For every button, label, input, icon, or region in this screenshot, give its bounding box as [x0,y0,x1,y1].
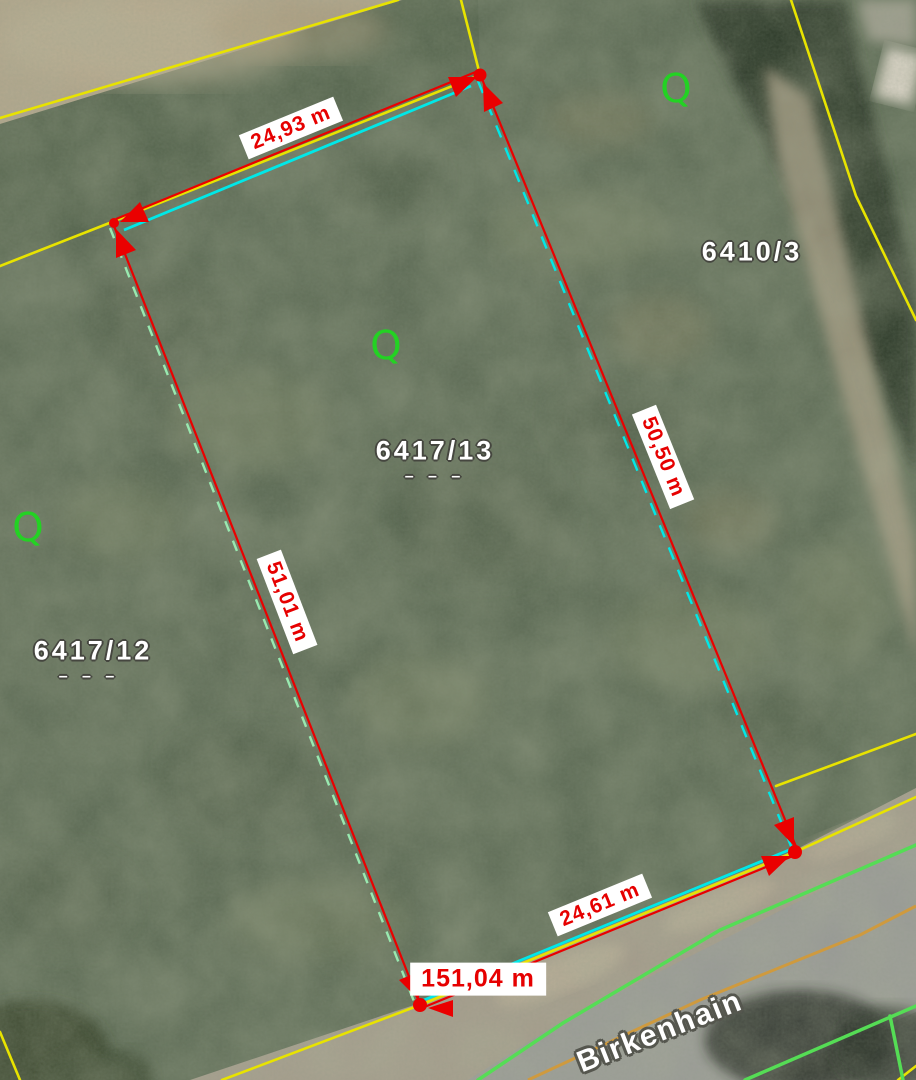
aerial-photo [0,0,916,1080]
parcel-label-6417-13: 6417/13 [376,436,495,467]
map-viewport[interactable]: 24,93 m 51,01 m 50,50 m 24,61 m 151,04 m… [0,0,916,1080]
parcel-marks-6417-12: – – – [59,668,120,686]
measurement-label-total: 151,04 m [410,963,546,996]
landuse-symbol-icon: Q [659,65,694,113]
parcel-marks-6417-13: – – – [405,468,466,486]
photo-texture [0,0,916,1080]
parcel-label-6410-3: 6410/3 [702,237,803,268]
aerial-photo-background [0,0,916,1080]
landuse-symbol-icon: Q [369,322,404,370]
parcel-label-6417-12: 6417/12 [34,636,153,667]
landuse-symbol-icon: Q [11,504,46,552]
